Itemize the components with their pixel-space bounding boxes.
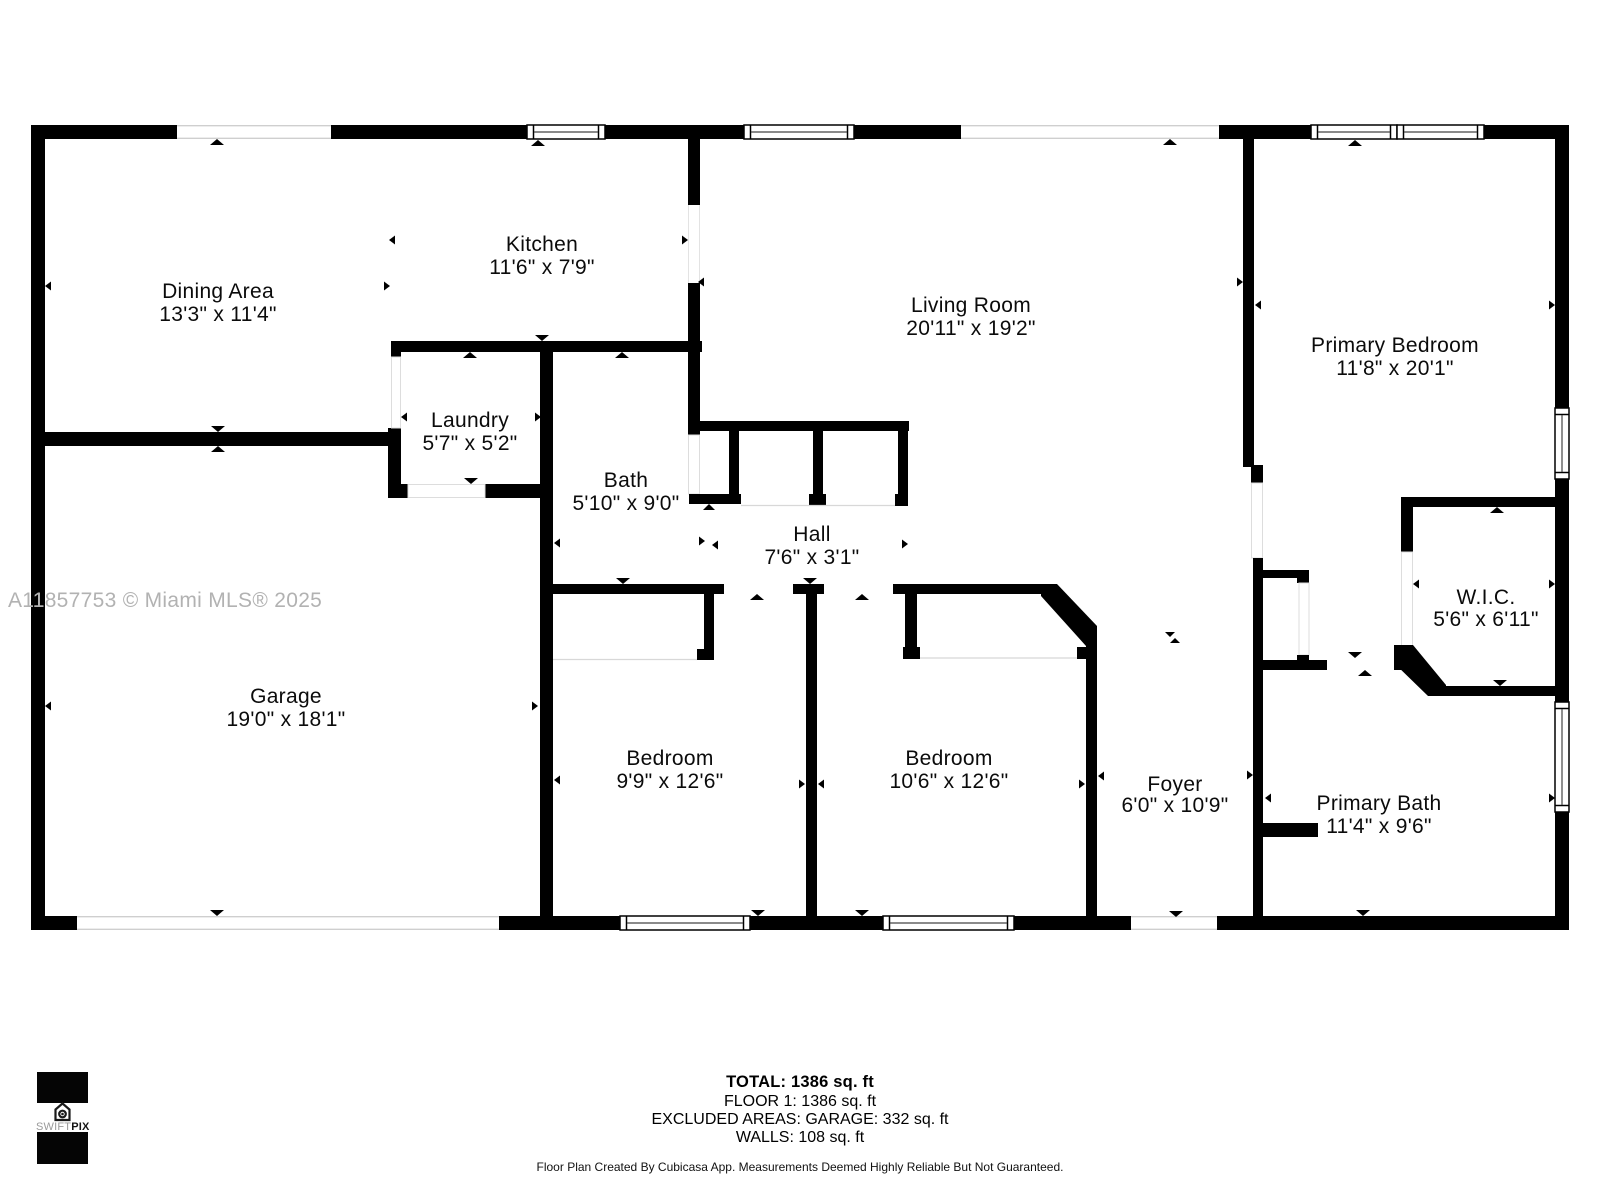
svg-text:Hall: Hall <box>793 523 830 546</box>
svg-text:19'0" x 18'1": 19'0" x 18'1" <box>226 708 345 731</box>
svg-text:Primary Bedroom: Primary Bedroom <box>1311 334 1479 357</box>
svg-text:EXCLUDED AREAS: GARAGE: 332 sq: EXCLUDED AREAS: GARAGE: 332 sq. ft <box>652 1111 950 1128</box>
svg-text:6'0" x 10'9": 6'0" x 10'9" <box>1121 794 1228 817</box>
svg-text:FLOOR 1: 1386 sq. ft: FLOOR 1: 1386 sq. ft <box>724 1093 877 1110</box>
svg-text:Kitchen: Kitchen <box>506 233 578 256</box>
svg-text:5'10" x 9'0": 5'10" x 9'0" <box>572 492 679 515</box>
svg-text:Dining Area: Dining Area <box>162 280 274 303</box>
svg-text:WALLS: 108 sq. ft: WALLS: 108 sq. ft <box>736 1129 865 1146</box>
svg-text:Foyer: Foyer <box>1147 773 1202 796</box>
svg-text:20'11" x 19'2": 20'11" x 19'2" <box>906 317 1036 340</box>
svg-text:SWIFTPIX: SWIFTPIX <box>36 1121 90 1133</box>
svg-text:Primary Bath: Primary Bath <box>1317 792 1442 815</box>
svg-text:Bedroom: Bedroom <box>626 747 713 770</box>
svg-text:Floor Plan Created By Cubicasa: Floor Plan Created By Cubicasa App. Meas… <box>537 1160 1064 1174</box>
svg-text:Living Room: Living Room <box>911 294 1031 317</box>
svg-text:13'3" x 11'4": 13'3" x 11'4" <box>159 303 277 326</box>
svg-text:5'6" x 6'11": 5'6" x 6'11" <box>1433 608 1539 631</box>
svg-text:10'6" x 12'6": 10'6" x 12'6" <box>889 770 1008 793</box>
svg-text:Bedroom: Bedroom <box>905 747 992 770</box>
svg-text:TOTAL: 1386 sq. ft: TOTAL: 1386 sq. ft <box>726 1073 874 1091</box>
svg-text:11'6" x 7'9": 11'6" x 7'9" <box>489 256 595 279</box>
svg-text:7'6" x 3'1": 7'6" x 3'1" <box>764 546 859 569</box>
svg-text:11'4" x 9'6": 11'4" x 9'6" <box>1326 815 1432 838</box>
svg-text:9'9" x 12'6": 9'9" x 12'6" <box>616 770 723 793</box>
svg-text:Bath: Bath <box>604 469 648 492</box>
svg-text:5'7" x 5'2": 5'7" x 5'2" <box>422 432 517 455</box>
svg-text:11'8" x 20'1": 11'8" x 20'1" <box>1336 357 1454 380</box>
svg-text:Laundry: Laundry <box>431 409 509 432</box>
svg-text:A11857753 © Miami MLS® 2025: A11857753 © Miami MLS® 2025 <box>8 589 322 612</box>
svg-text:W.I.C.: W.I.C. <box>1457 586 1516 609</box>
svg-text:Garage: Garage <box>250 685 322 708</box>
